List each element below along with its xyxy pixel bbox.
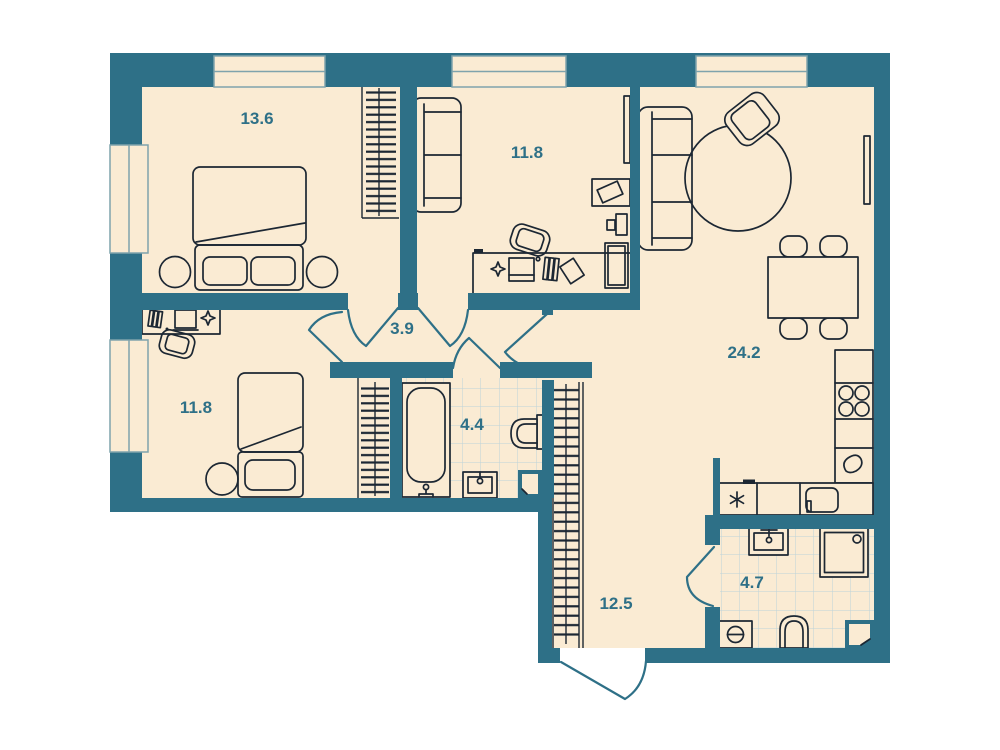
wardrobe-hangers [358,378,389,498]
room-label-bedroom-small: 11.8 [180,398,212,417]
entrance-door [561,661,646,699]
room-label-hallway: 3.9 [390,319,414,338]
room-label-living-kitchen: 24.2 [727,343,760,362]
room-label-corridor: 12.5 [599,594,632,613]
sink [749,528,788,555]
room-label-bathroom: 4.4 [460,415,484,434]
wardrobe-hangers [553,382,583,648]
toilet [780,616,808,648]
washing-machine [719,621,752,648]
sink [463,472,497,498]
wardrobe-hangers [362,87,399,218]
toilet [511,415,545,449]
floor-plan: 13.6 11.8 24.2 3.9 11.8 4.4 12.5 4.7 [0,0,1000,750]
room-label-shower-room: 4.7 [740,573,764,592]
room-label-bedroom-large: 13.6 [240,109,273,128]
floor-plan-page: 13.6 11.8 24.2 3.9 11.8 4.4 12.5 4.7 [0,0,1000,750]
room-label-study: 11.8 [511,143,543,162]
shower [820,528,868,577]
bathtub [402,383,450,497]
